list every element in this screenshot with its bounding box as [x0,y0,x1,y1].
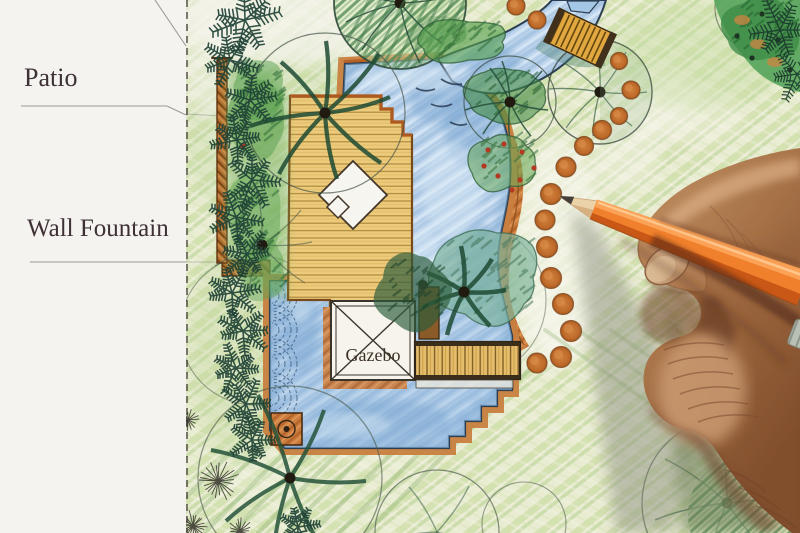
svg-text:Gazebo: Gazebo [346,345,401,365]
svg-text:Patio: Patio [24,63,77,92]
svg-text:Wall Fountain: Wall Fountain [27,215,169,242]
